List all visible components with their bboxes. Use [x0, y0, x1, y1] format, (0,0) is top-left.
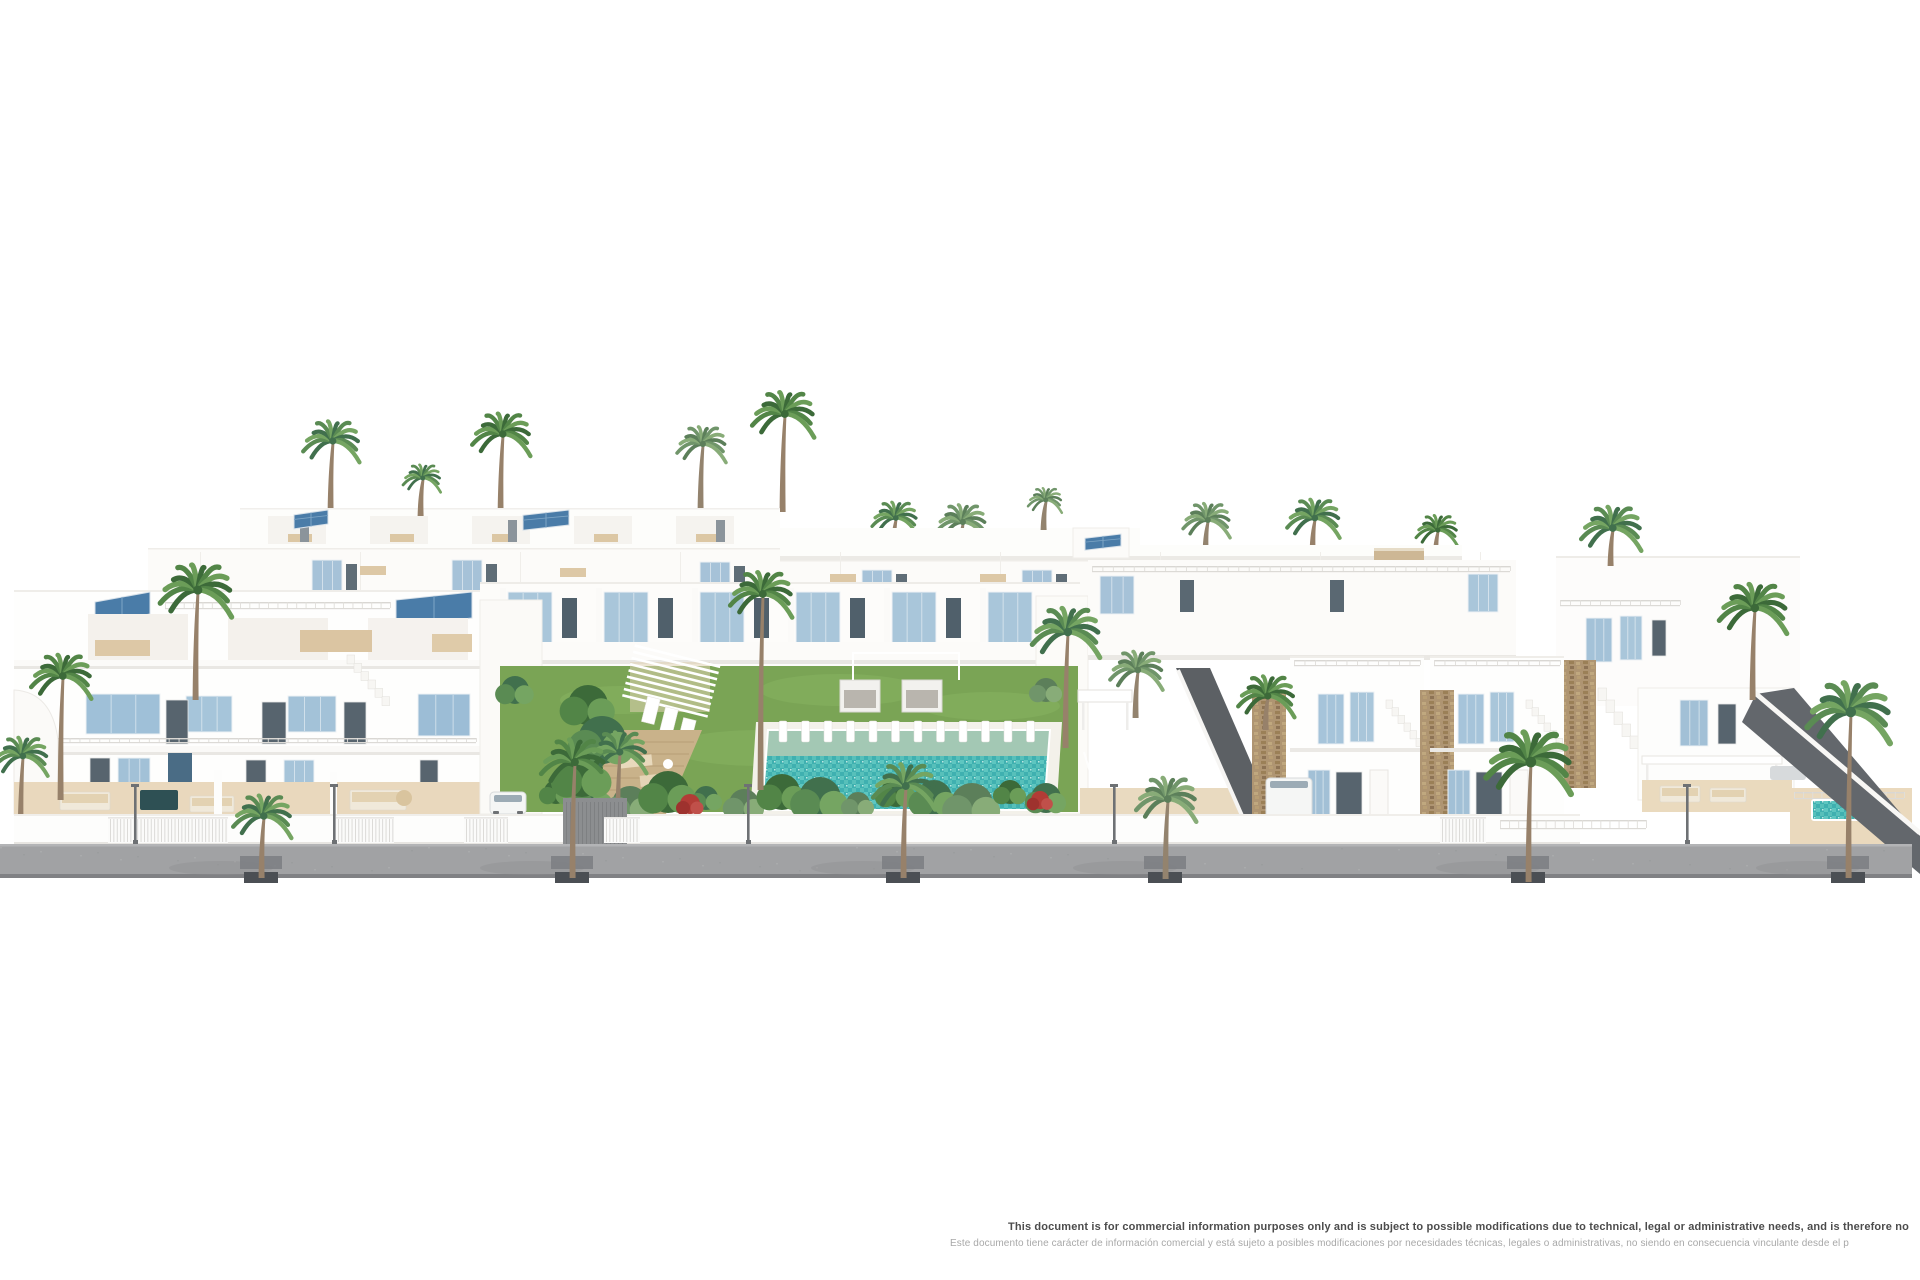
left-apartment-block: [14, 590, 480, 814]
window-shutter: [796, 592, 840, 644]
fence-panel: [108, 817, 228, 843]
fence-panel: [464, 817, 508, 843]
palm-tree: [1287, 500, 1340, 552]
window-shutter: [1350, 692, 1374, 742]
fence-panel: [1440, 817, 1486, 843]
daybed: [840, 680, 880, 712]
window-shutter: [892, 592, 936, 644]
fence-panel: [336, 817, 394, 843]
roof-terrace-furniture: [560, 568, 586, 577]
development-3d-render: [0, 0, 1920, 1280]
palm-tree: [472, 414, 530, 518]
roof-terrace-furniture: [830, 574, 856, 583]
window-shutter: [86, 694, 160, 734]
render-canvas: This document is for commercial informat…: [0, 0, 1920, 1280]
window-shutter: [604, 592, 648, 644]
window-shutter: [1680, 700, 1708, 746]
stone-cladding: [1560, 660, 1596, 788]
sun-lounger: [914, 721, 922, 742]
parked-van: [1266, 778, 1312, 818]
glass-door: [1652, 620, 1666, 656]
window-shutter: [1100, 576, 1134, 614]
outdoor-furniture: [190, 796, 234, 812]
window-shutter: [988, 592, 1032, 644]
window-shutter: [284, 760, 314, 784]
window-shutter: [288, 696, 336, 732]
window-shutter: [1468, 574, 1498, 612]
outdoor-furniture: [1660, 786, 1700, 802]
outdoor-furniture: [60, 792, 110, 810]
sun-lounger: [869, 721, 877, 742]
window-shutter: [1620, 616, 1642, 660]
palm-tree: [1183, 504, 1230, 552]
sun-lounger: [824, 721, 832, 742]
palm-tree: [1110, 652, 1163, 718]
plunge-pool: [140, 790, 178, 810]
outdoor-furniture: [1710, 788, 1746, 802]
sun-lounger: [802, 721, 810, 742]
palm-tree: [752, 392, 814, 512]
window-shutter: [186, 696, 232, 732]
fence-panel: [604, 817, 640, 843]
railing: [1092, 566, 1511, 572]
sun-lounger: [982, 721, 990, 742]
disclaimer-line-en: This document is for commercial informat…: [1008, 1221, 1909, 1233]
sun-lounger: [847, 721, 855, 742]
glass-door: [166, 700, 188, 744]
disclaimer-line-es: Este documento tiene carácter de informa…: [950, 1238, 1849, 1249]
window-shutter: [1586, 618, 1612, 662]
palm-tree: [1028, 488, 1062, 530]
left-parking: [490, 792, 526, 814]
palm-tree: [1238, 676, 1294, 730]
daybed: [902, 680, 942, 712]
glass-door: [344, 702, 366, 744]
window-shutter: [1458, 694, 1484, 744]
garden-pergola: [1078, 690, 1132, 702]
right-rear-apartments: [1088, 560, 1516, 660]
terrace-awning: [1642, 756, 1782, 764]
sun-lounger: [1004, 721, 1012, 742]
sun-lounger: [892, 721, 900, 742]
parked-car: [490, 792, 526, 814]
palm-tree: [677, 427, 726, 512]
sun-lounger: [779, 721, 787, 742]
sun-lounger: [937, 721, 945, 742]
window-shutter: [418, 694, 470, 736]
window-shutter: [118, 758, 150, 784]
roof-terrace-furniture: [360, 566, 386, 575]
window-shutter: [1318, 694, 1344, 744]
glass-door: [262, 702, 286, 744]
sidewalk: [0, 844, 1912, 883]
sun-lounger: [959, 721, 967, 742]
glass-door: [168, 753, 192, 785]
sun-lounger: [1027, 721, 1035, 742]
roof-terrace-furniture: [980, 574, 1006, 583]
glass-door: [1718, 704, 1736, 744]
palm-tree: [303, 421, 359, 515]
